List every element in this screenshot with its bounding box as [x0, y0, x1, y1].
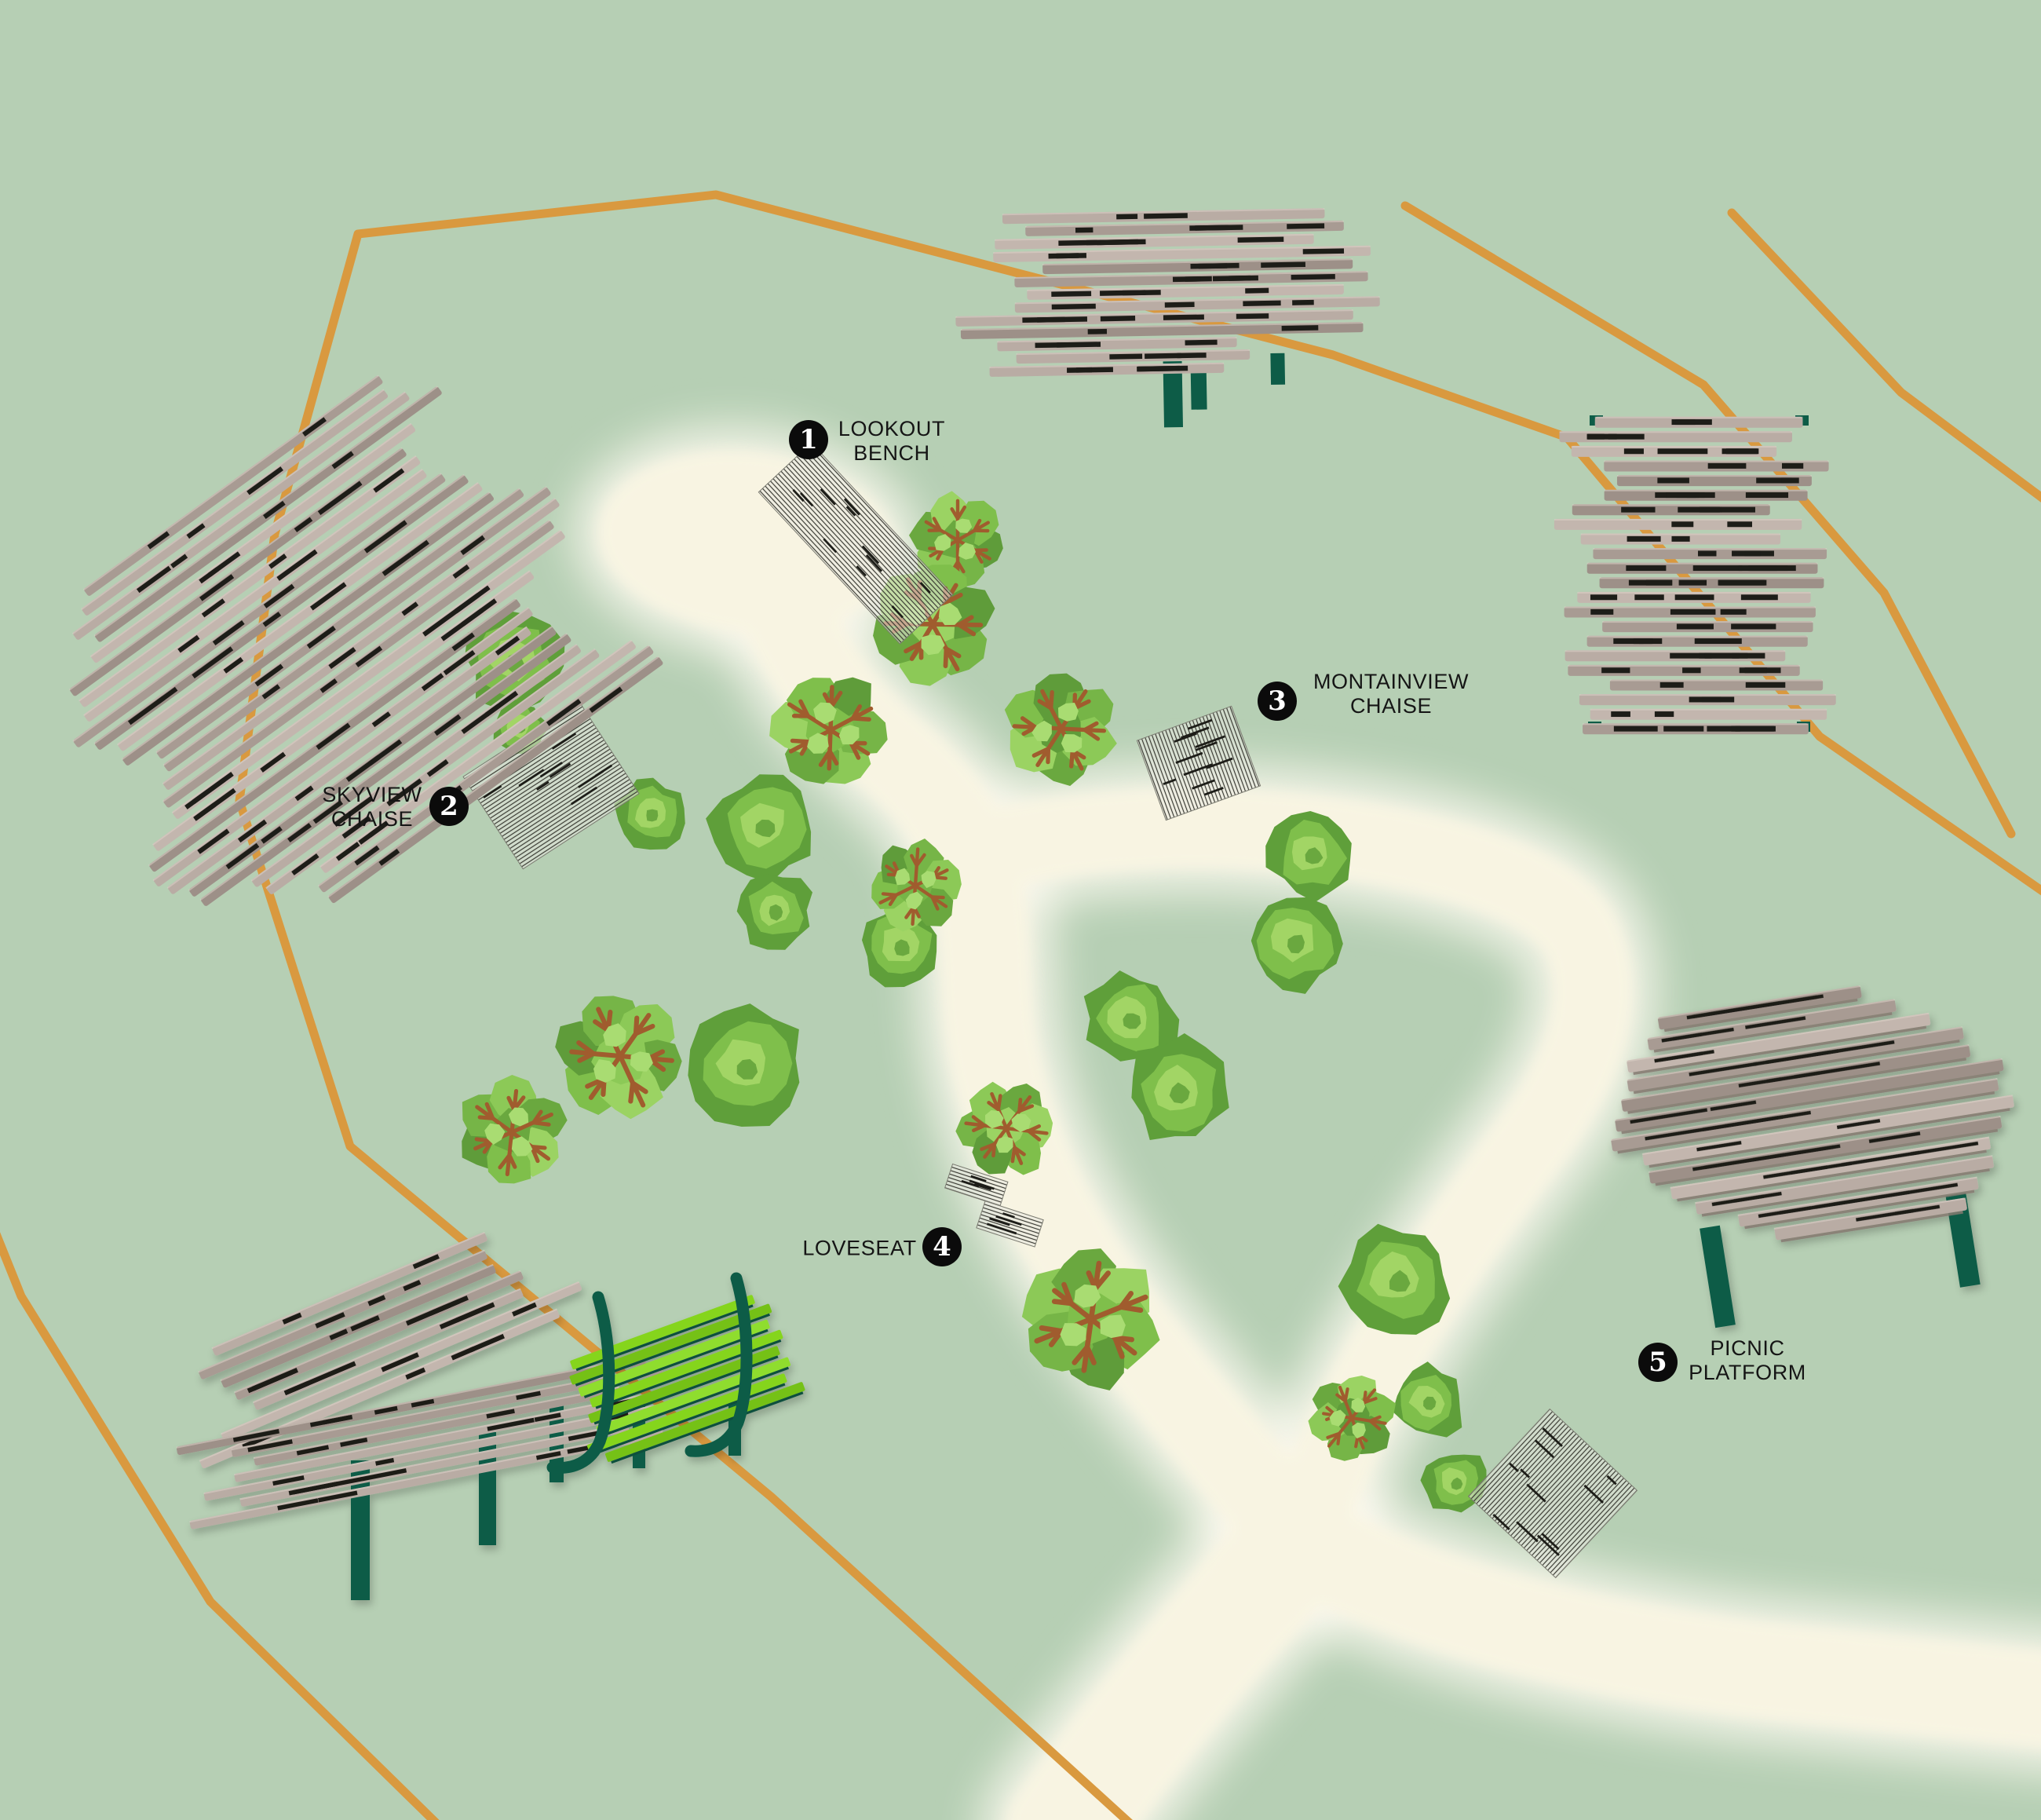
- bush-tree-icon: [688, 1003, 799, 1127]
- label-3-number: 3: [1268, 685, 1287, 717]
- bush-tree-icon: [737, 874, 812, 950]
- site-map-canvas: [0, 0, 2041, 1820]
- montainview-chaise-render: [1554, 415, 1836, 734]
- label-5-badge: 5: [1638, 1343, 1678, 1382]
- label-4-text: LOVESEAT: [802, 1237, 916, 1261]
- bush-tree-icon: [706, 774, 811, 883]
- loveseat-render: [161, 1205, 807, 1600]
- label-3-badge: 3: [1258, 682, 1297, 721]
- label-1-text: LOOKOUT BENCH: [838, 417, 945, 466]
- skyview-chaise-render: [0, 334, 671, 981]
- label-2-text: SKYVIEW CHAISE: [322, 783, 422, 831]
- tree-icon: [462, 1075, 567, 1183]
- label-2-badge: 2: [429, 787, 469, 826]
- label-1-number: 1: [799, 424, 818, 455]
- label-1-badge: 1: [789, 420, 828, 459]
- label-3-text: MONTAINVIEW CHAISE: [1313, 670, 1469, 718]
- label-2-number: 2: [440, 791, 458, 822]
- bush-tree-icon: [1251, 897, 1343, 994]
- tree-icon: [555, 996, 681, 1119]
- label-5-number: 5: [1648, 1347, 1667, 1378]
- lookout-bench-render: [954, 207, 1382, 431]
- contour-line-3: [1732, 213, 2041, 504]
- picnic-platform-render: [1593, 964, 2041, 1339]
- label-5-text: PICNIC PLATFORM: [1689, 1336, 1806, 1385]
- label-4-number: 4: [933, 1231, 951, 1263]
- park-site-plan: 1 LOOKOUT BENCH 2 SKYVIEW CHAISE 3 MONTA…: [0, 0, 2041, 1820]
- label-4-badge: 4: [922, 1227, 962, 1266]
